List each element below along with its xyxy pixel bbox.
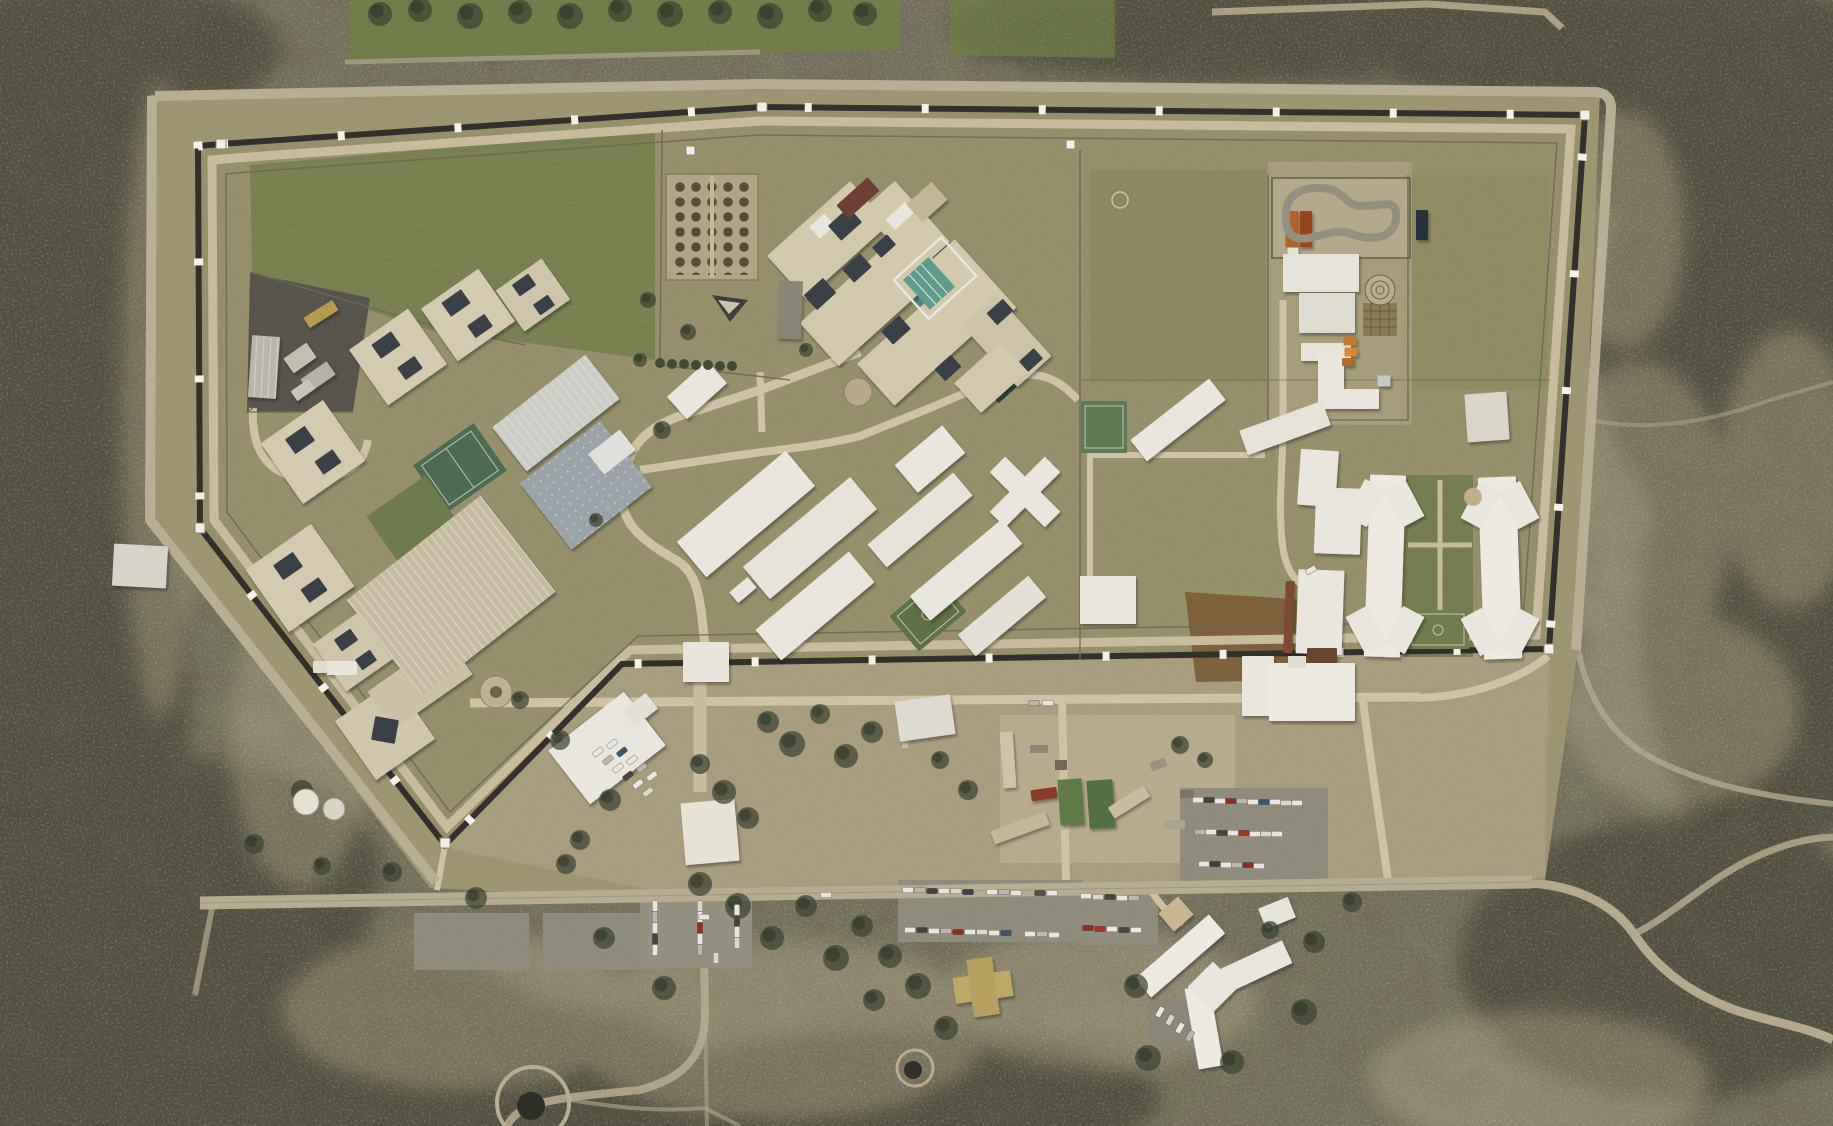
round-feature	[517, 1092, 545, 1120]
parked-car	[1215, 798, 1226, 804]
parked-car	[1199, 861, 1210, 867]
parked-car	[1237, 798, 1248, 804]
building-roof	[1288, 248, 1299, 257]
building-roof	[1057, 778, 1084, 826]
tree-canopy-core	[610, 0, 623, 13]
tree-canopy-core	[797, 897, 809, 909]
tree-canopy-core	[1294, 1002, 1308, 1016]
parked-car	[1248, 799, 1259, 805]
parked-car	[927, 888, 938, 894]
tree-canopy-core	[682, 326, 691, 335]
building-roof	[1080, 576, 1136, 624]
parked-car	[917, 927, 928, 933]
parked-car	[652, 945, 658, 956]
parked-car	[1204, 797, 1215, 803]
parked-car	[989, 930, 1000, 936]
parked-car	[951, 888, 962, 894]
building-roof	[894, 694, 955, 741]
parked-car	[1261, 831, 1272, 837]
parked-car	[905, 927, 916, 933]
parked-car	[1043, 700, 1054, 706]
tree-canopy-core	[315, 859, 325, 869]
parked-car	[1195, 829, 1206, 835]
parked-car	[1226, 798, 1237, 804]
parked-car	[734, 938, 740, 949]
tree-canopy-core	[1344, 894, 1355, 905]
building-roof	[1325, 389, 1379, 409]
parked-car	[903, 887, 914, 893]
parked-car	[965, 929, 976, 935]
tree-canopy-core	[572, 832, 583, 843]
parked-car	[652, 901, 658, 912]
parked-car	[953, 929, 964, 935]
tree-canopy-core	[760, 6, 774, 20]
building-roof	[1296, 569, 1345, 655]
building-roof	[1342, 358, 1354, 366]
parked-car	[1254, 863, 1265, 869]
parked-car	[1001, 930, 1012, 936]
tree-canopy-core	[560, 6, 574, 20]
parked-car	[1239, 830, 1250, 836]
parked-car	[1049, 932, 1060, 938]
tree-canopy-core	[510, 2, 523, 15]
parked-car	[1250, 831, 1261, 837]
tree-canopy-core	[865, 991, 877, 1003]
parked-car	[1037, 931, 1048, 937]
parked-car	[713, 953, 719, 964]
building-roof	[1416, 210, 1428, 240]
tree-canopy-core	[908, 976, 922, 990]
tree-canopy-core	[467, 889, 479, 901]
parked-car	[652, 923, 658, 934]
parked-car	[1131, 927, 1142, 933]
round-feature	[844, 378, 872, 406]
tree-canopy-core	[1199, 754, 1208, 763]
parked-car	[652, 912, 658, 923]
parked-car	[697, 945, 703, 956]
parked-car	[915, 887, 926, 893]
tree-canopy-core	[853, 917, 865, 929]
tree-canopy-core	[384, 864, 395, 875]
tree-canopy-core	[812, 706, 823, 717]
parked-car	[1029, 700, 1040, 706]
tree-canopy-core	[654, 978, 667, 991]
parked-car	[977, 929, 988, 935]
parked-car	[1232, 862, 1243, 868]
tree-canopy-core	[810, 0, 823, 13]
building-roof	[1314, 487, 1362, 555]
tree-canopy-core	[739, 809, 751, 821]
parked-car	[699, 914, 710, 920]
tree-canopy-core	[880, 946, 893, 959]
tree-canopy-core	[960, 782, 971, 793]
parked-car	[734, 927, 740, 938]
aerial-photo-prison-complex: BK	[0, 0, 1833, 1126]
round-feature	[323, 798, 345, 820]
sport-court	[1081, 401, 1127, 453]
tree-canopy-core	[370, 4, 383, 17]
parked-car	[1119, 927, 1130, 933]
aerial-photo-canvas: BK	[0, 0, 1833, 1126]
parked-car	[1117, 895, 1128, 901]
tree-canopy-core	[642, 294, 651, 303]
ground-marking-bk: BK	[1302, 422, 1321, 433]
parked-car	[1081, 893, 1092, 899]
building-roof	[1378, 376, 1391, 387]
tree-canopy-core	[1126, 976, 1139, 989]
parked-car	[821, 892, 832, 898]
parked-car	[734, 905, 740, 916]
tree-canopy-core	[1173, 738, 1183, 748]
parked-car	[1292, 800, 1303, 806]
tree-canopy-core	[762, 928, 775, 941]
tree-canopy-core	[601, 791, 613, 803]
parked-car	[652, 934, 658, 945]
tree-canopy-core	[595, 929, 607, 941]
tree-canopy-core	[1263, 923, 1273, 933]
parked-car	[1228, 830, 1239, 836]
building-roof	[777, 281, 803, 340]
tree-canopy-core	[655, 423, 665, 433]
cell-courtyard	[371, 716, 399, 744]
building-roof	[1299, 293, 1355, 333]
round-feature	[1464, 488, 1482, 506]
parked-car	[697, 934, 703, 945]
tree-canopy-core	[836, 746, 849, 759]
parked-car	[1272, 831, 1283, 837]
parked-car	[1270, 799, 1281, 805]
building-roof	[1283, 254, 1359, 292]
parked-car	[697, 923, 703, 934]
parked-car	[929, 928, 940, 934]
parked-car	[999, 889, 1010, 895]
tree-canopy-core	[590, 514, 598, 522]
parked-car	[1047, 890, 1058, 896]
round-feature	[293, 789, 319, 815]
tree-canopy-core	[855, 4, 868, 17]
tree-canopy-core	[634, 354, 642, 362]
tree-canopy-core	[513, 693, 523, 703]
tree-canopy-core	[936, 1018, 949, 1031]
parked-car	[1107, 926, 1118, 932]
tree-canopy-core	[246, 836, 257, 847]
tree-canopy-core	[692, 756, 703, 767]
building-roof	[112, 544, 168, 589]
parked-car	[1210, 861, 1221, 867]
building-roof	[327, 661, 357, 675]
parked-car	[1025, 931, 1036, 937]
parked-car	[1193, 797, 1204, 803]
parked-car	[941, 928, 952, 934]
tree-canopy-core	[800, 344, 808, 352]
parked-car	[1035, 890, 1046, 896]
tree-canopy-core	[690, 874, 703, 887]
tree-canopy-core	[552, 732, 563, 743]
building-roof	[680, 799, 739, 865]
building-roof	[1344, 337, 1357, 346]
tree-canopy-core	[933, 753, 943, 763]
parked-car	[1129, 895, 1140, 901]
building-roof	[1464, 392, 1509, 443]
building-roof	[1288, 656, 1306, 668]
parked-car	[1221, 862, 1232, 868]
parked-car	[987, 889, 998, 895]
tree-canopy-core	[410, 0, 423, 13]
parked-car	[1281, 800, 1292, 806]
building-roof	[1269, 663, 1355, 721]
parked-car	[1083, 925, 1094, 931]
parked-car	[1259, 799, 1270, 805]
tree-canopy-core	[558, 856, 569, 867]
tree-canopy-core	[1305, 933, 1317, 945]
parked-car	[963, 889, 974, 895]
parked-car	[734, 916, 740, 927]
garden-grid	[1363, 303, 1397, 336]
tree-canopy-core	[710, 2, 723, 15]
tree-canopy-core	[460, 6, 474, 20]
building-roof	[1086, 779, 1115, 829]
round-feature	[490, 686, 502, 698]
parked-car	[1217, 830, 1228, 836]
building-roof	[683, 642, 729, 682]
tree-canopy-core	[1138, 1048, 1152, 1062]
parked-car	[1095, 926, 1106, 932]
building-roof	[313, 661, 327, 673]
round-feature	[1365, 275, 1395, 305]
tree-canopy-core	[660, 4, 674, 18]
tree-canopy-core	[759, 713, 771, 725]
tree-canopy-core	[714, 782, 727, 795]
parked-car	[1206, 829, 1217, 835]
tree-canopy-core	[826, 948, 840, 962]
parked-car	[1011, 890, 1022, 896]
tree-canopy-core	[782, 734, 796, 748]
parked-car	[1093, 894, 1104, 900]
building-roof	[1345, 348, 1358, 357]
garden-plots	[666, 174, 758, 280]
parked-car	[939, 888, 950, 894]
tree-canopy-core	[1222, 1052, 1235, 1065]
parked-car	[697, 901, 703, 912]
round-feature	[904, 1061, 922, 1079]
parked-car	[1243, 862, 1254, 868]
parked-car	[1105, 894, 1116, 900]
tree-canopy-core	[863, 723, 875, 735]
